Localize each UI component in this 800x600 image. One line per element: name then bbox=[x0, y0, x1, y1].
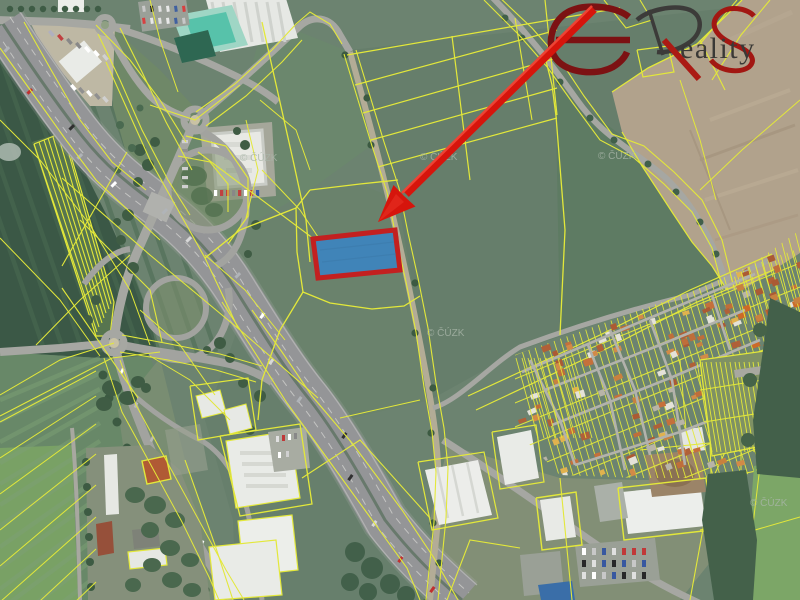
svg-text:© ČÚZK: © ČÚZK bbox=[598, 149, 636, 162]
svg-text:© ČÚZK: © ČÚZK bbox=[750, 496, 788, 509]
svg-text:eality: eality bbox=[680, 32, 756, 65]
svg-text:© ČÚZK: © ČÚZK bbox=[427, 326, 465, 339]
svg-text:© ČÚZK: © ČÚZK bbox=[240, 151, 278, 164]
